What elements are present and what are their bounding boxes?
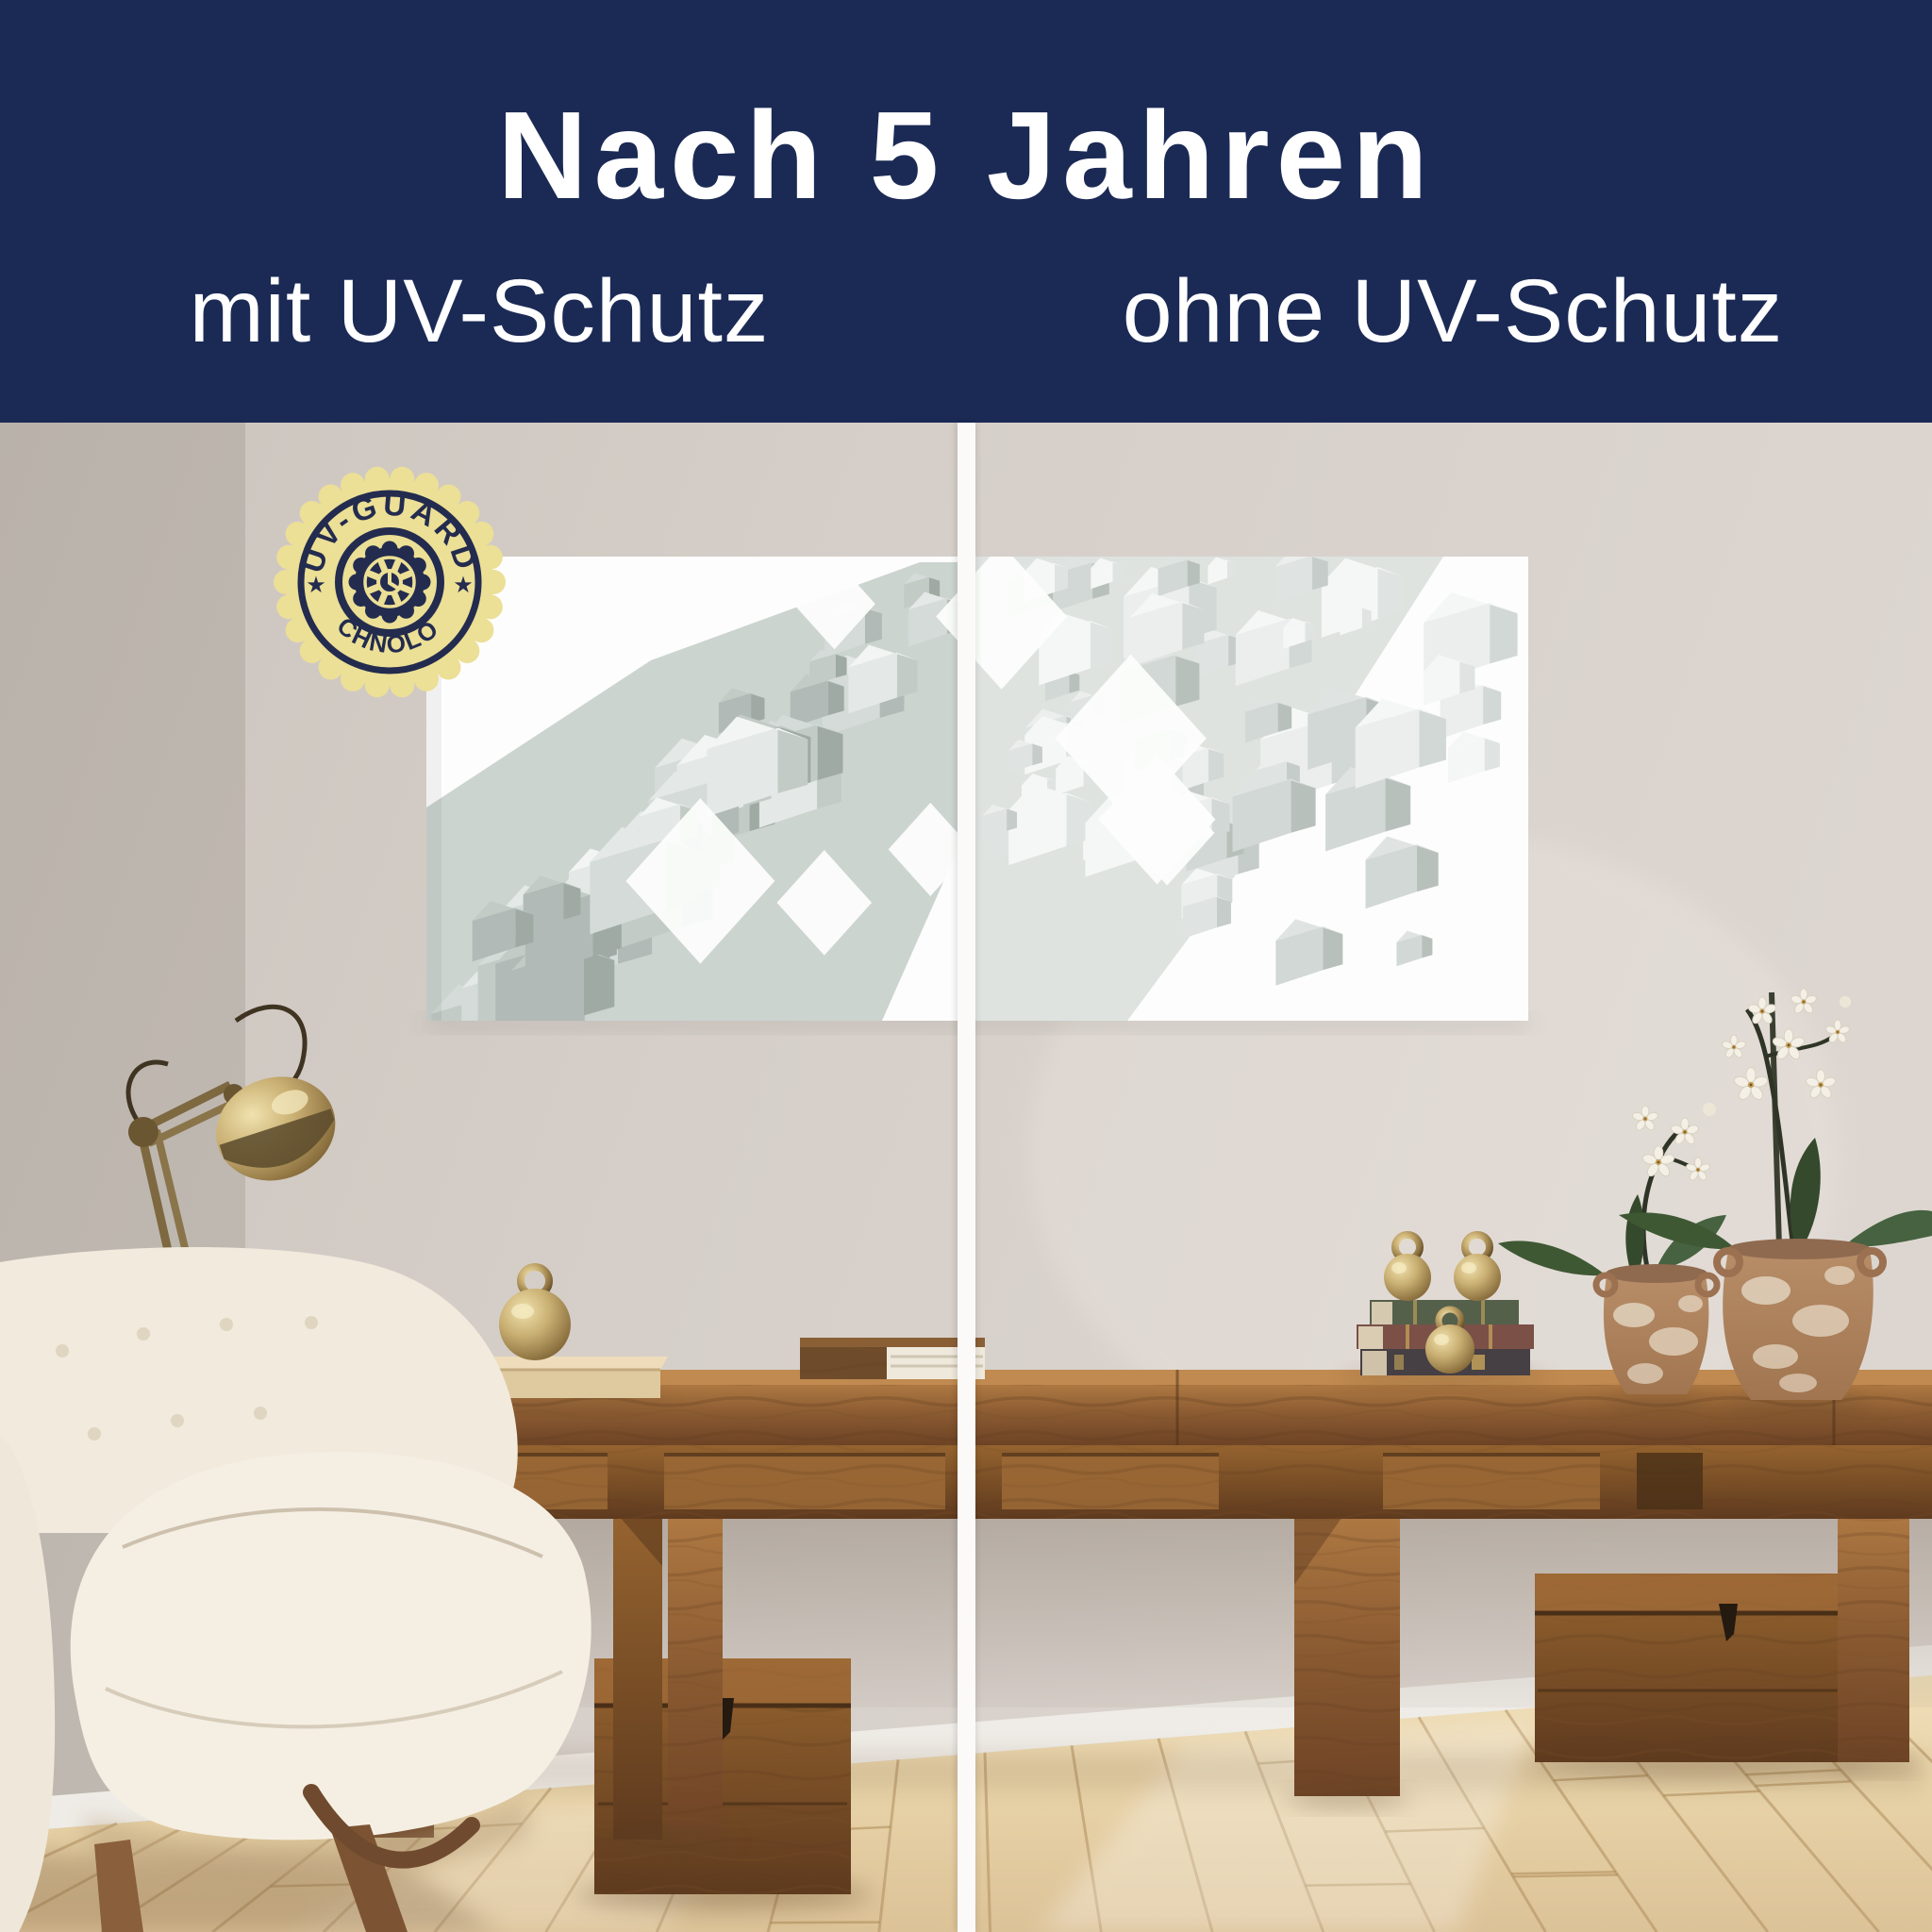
- label-without-uv: ohne UV-Schutz: [974, 260, 1932, 363]
- gear-clock-icon: [339, 531, 441, 633]
- star-icon: ★: [453, 572, 474, 598]
- wall-artwork: [426, 543, 1528, 1074]
- faded-overlay: [975, 557, 1528, 1021]
- table-drawers: [404, 1453, 1703, 1509]
- split-divider-bar: [958, 423, 975, 1932]
- header-band: Nach 5 Jahren mit UV-Schutz ohne UV-Schu…: [0, 0, 1932, 423]
- storage-chest-right: [1528, 1574, 1868, 1775]
- product-comparison-image: Nach 5 Jahren mit UV-Schutz ohne UV-Schu…: [0, 0, 1932, 1932]
- headline: Nach 5 Jahren: [0, 87, 1932, 224]
- star-icon: ★: [306, 572, 326, 598]
- label-with-uv: mit UV-Schutz: [0, 260, 958, 363]
